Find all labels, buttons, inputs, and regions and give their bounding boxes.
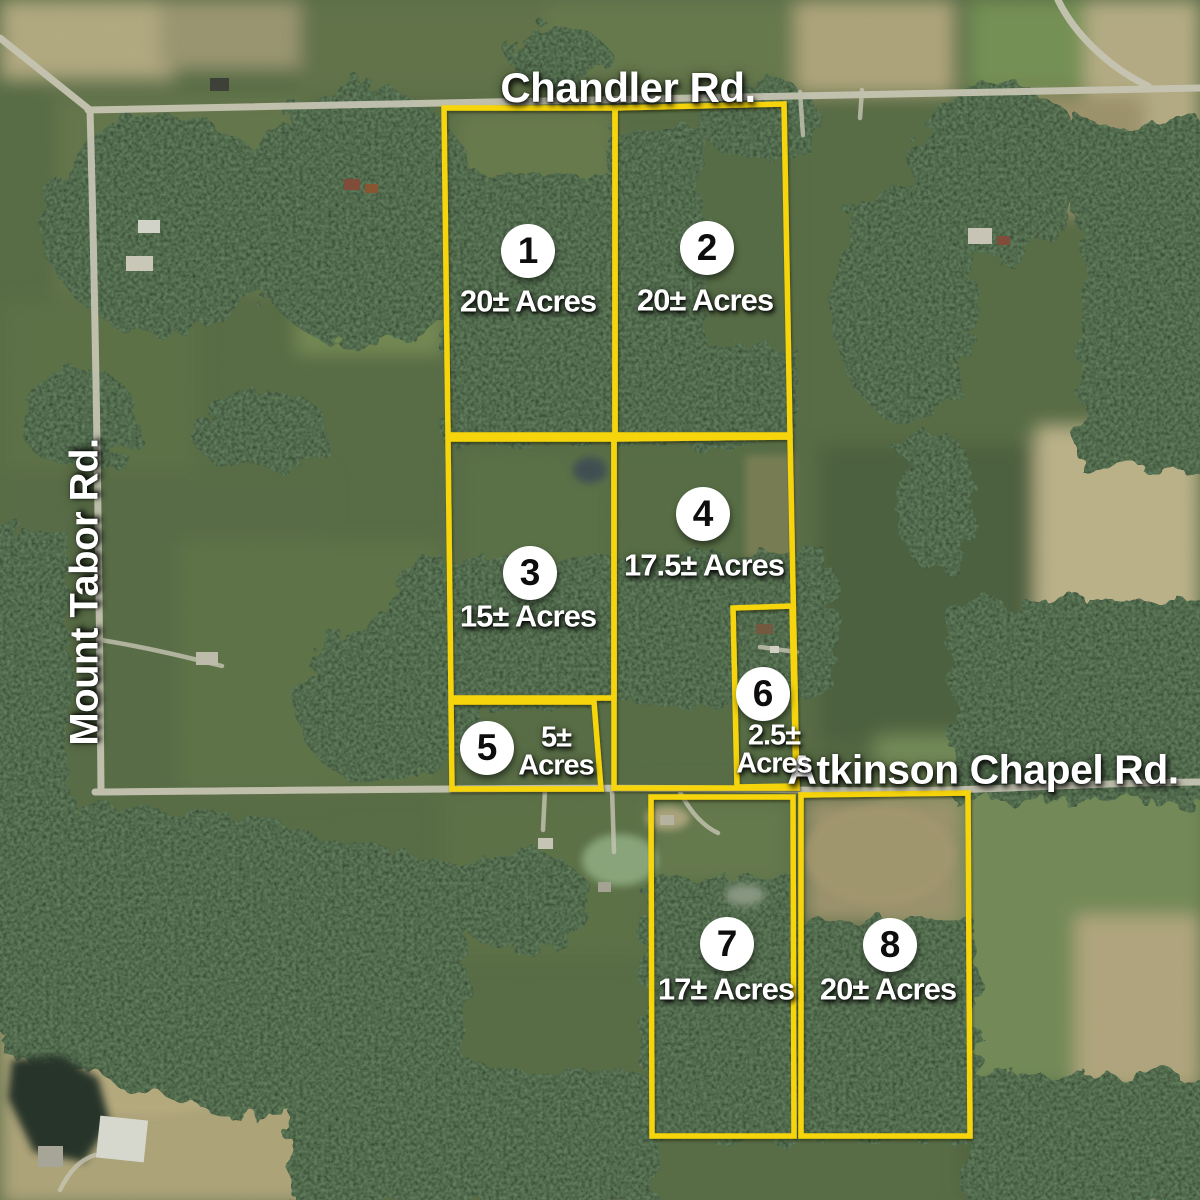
parcel-6-number-badge: 6	[736, 667, 790, 721]
parcel-3-number-badge: 3	[503, 546, 557, 600]
aerial-imagery	[0, 0, 1200, 1200]
parcel-2-number-badge: 2	[680, 221, 734, 275]
photo-grain-overlay	[0, 0, 1200, 1200]
parcel-4-acreage-label: 17.5± Acres	[624, 550, 784, 579]
parcel-6-acreage-line2: Acres	[736, 747, 812, 779]
parcel-7-acreage-label: 17± Acres	[658, 974, 794, 1003]
parcel-1-acreage-label: 20± Acres	[460, 286, 596, 315]
parcel-6-acreage-label: 2.5± Acres	[719, 722, 829, 777]
parcel-8-acreage-label: 20± Acres	[820, 974, 956, 1003]
aerial-parcel-map: Chandler Rd. Mount Tabor Rd. Atkinson Ch…	[0, 0, 1200, 1200]
parcel-3-acreage-label: 15± Acres	[460, 601, 596, 630]
parcel-8-number-badge: 8	[863, 918, 917, 972]
parcel-7-number-badge: 7	[700, 917, 754, 971]
parcel-1-number-badge: 1	[501, 224, 555, 278]
parcel-2-acreage-label: 20± Acres	[637, 285, 773, 314]
road-label-mount-tabor: Mount Tabor Rd.	[63, 438, 108, 745]
road-label-atkinson-chapel: Atkinson Chapel Rd.	[787, 747, 1178, 794]
parcel-5-acreage-line2: Acres	[518, 749, 594, 781]
road-label-chandler: Chandler Rd.	[500, 64, 755, 112]
parcel-5-acreage-label: 5± Acres	[501, 724, 611, 779]
parcel-4-number-badge: 4	[676, 487, 730, 541]
